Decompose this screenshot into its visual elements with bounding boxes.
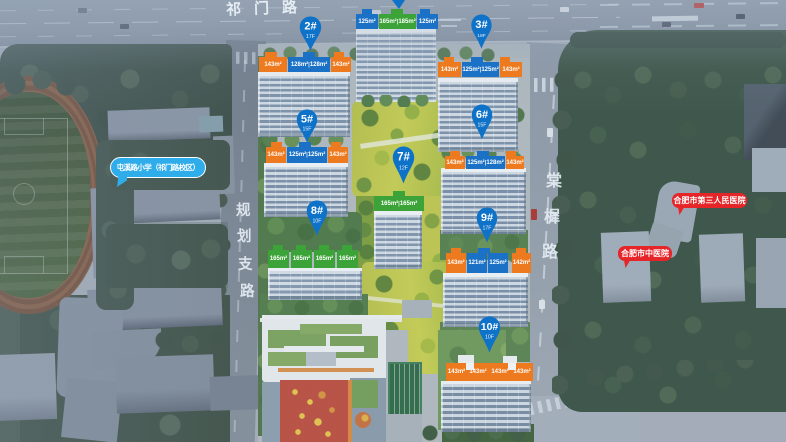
svg-text:10#: 10# bbox=[481, 321, 499, 333]
svg-text:3#: 3# bbox=[475, 19, 487, 31]
svg-text:15F: 15F bbox=[303, 127, 312, 133]
svg-text:17F: 17F bbox=[483, 226, 492, 232]
svg-text:18F: 18F bbox=[477, 33, 485, 39]
svg-text:7#: 7# bbox=[397, 152, 410, 164]
svg-text:15F: 15F bbox=[478, 123, 487, 129]
svg-text:5#: 5# bbox=[301, 114, 313, 126]
svg-text:9#: 9# bbox=[481, 212, 493, 224]
svg-text:6#: 6# bbox=[476, 109, 488, 121]
svg-text:12F: 12F bbox=[399, 166, 408, 172]
svg-text:17F: 17F bbox=[306, 34, 315, 40]
svg-text:2#: 2# bbox=[304, 21, 316, 33]
svg-text:10F: 10F bbox=[313, 219, 322, 225]
svg-text:8#: 8# bbox=[311, 205, 323, 217]
svg-text:10F: 10F bbox=[485, 335, 494, 341]
